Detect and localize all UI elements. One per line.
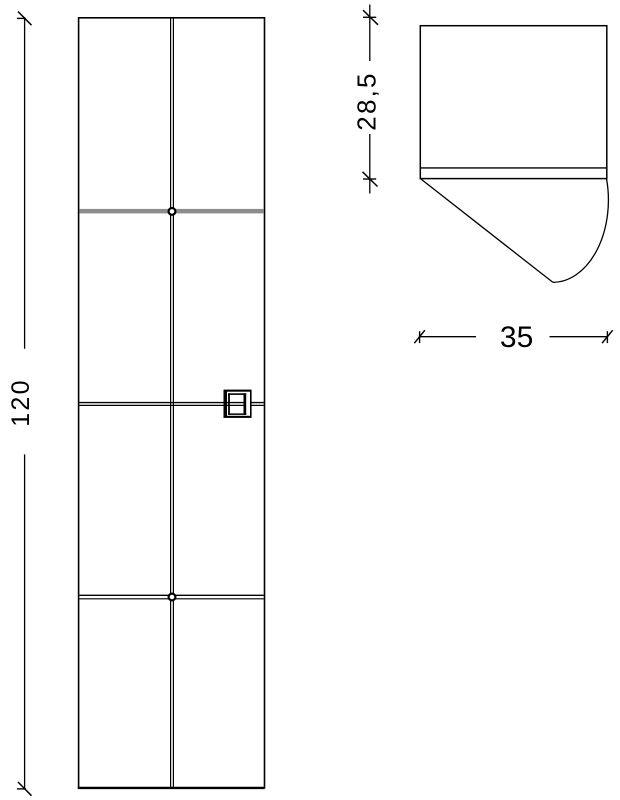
svg-text:28,5: 28,5	[351, 71, 381, 130]
svg-text:120: 120	[7, 378, 35, 427]
svg-text:35: 35	[500, 321, 533, 354]
